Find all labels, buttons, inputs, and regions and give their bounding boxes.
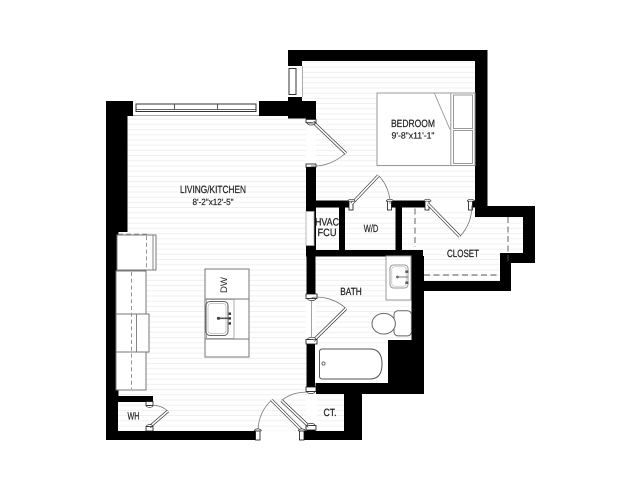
- svg-text:FCU: FCU: [318, 227, 337, 239]
- svg-text:8'-2"x12'-5": 8'-2"x12'-5": [193, 197, 234, 207]
- svg-text:W/D: W/D: [364, 223, 379, 235]
- svg-text:BATH: BATH: [340, 286, 362, 298]
- svg-text:CLOSET: CLOSET: [447, 248, 479, 260]
- svg-text:BEDROOM: BEDROOM: [391, 118, 435, 130]
- svg-text:9'-8"x11'-1": 9'-8"x11'-1": [392, 131, 435, 141]
- svg-text:DW: DW: [219, 277, 230, 293]
- svg-text:LIVING/KITCHEN: LIVING/KITCHEN: [180, 184, 246, 196]
- svg-text:WH: WH: [128, 411, 140, 423]
- svg-text:CT.: CT.: [324, 407, 337, 419]
